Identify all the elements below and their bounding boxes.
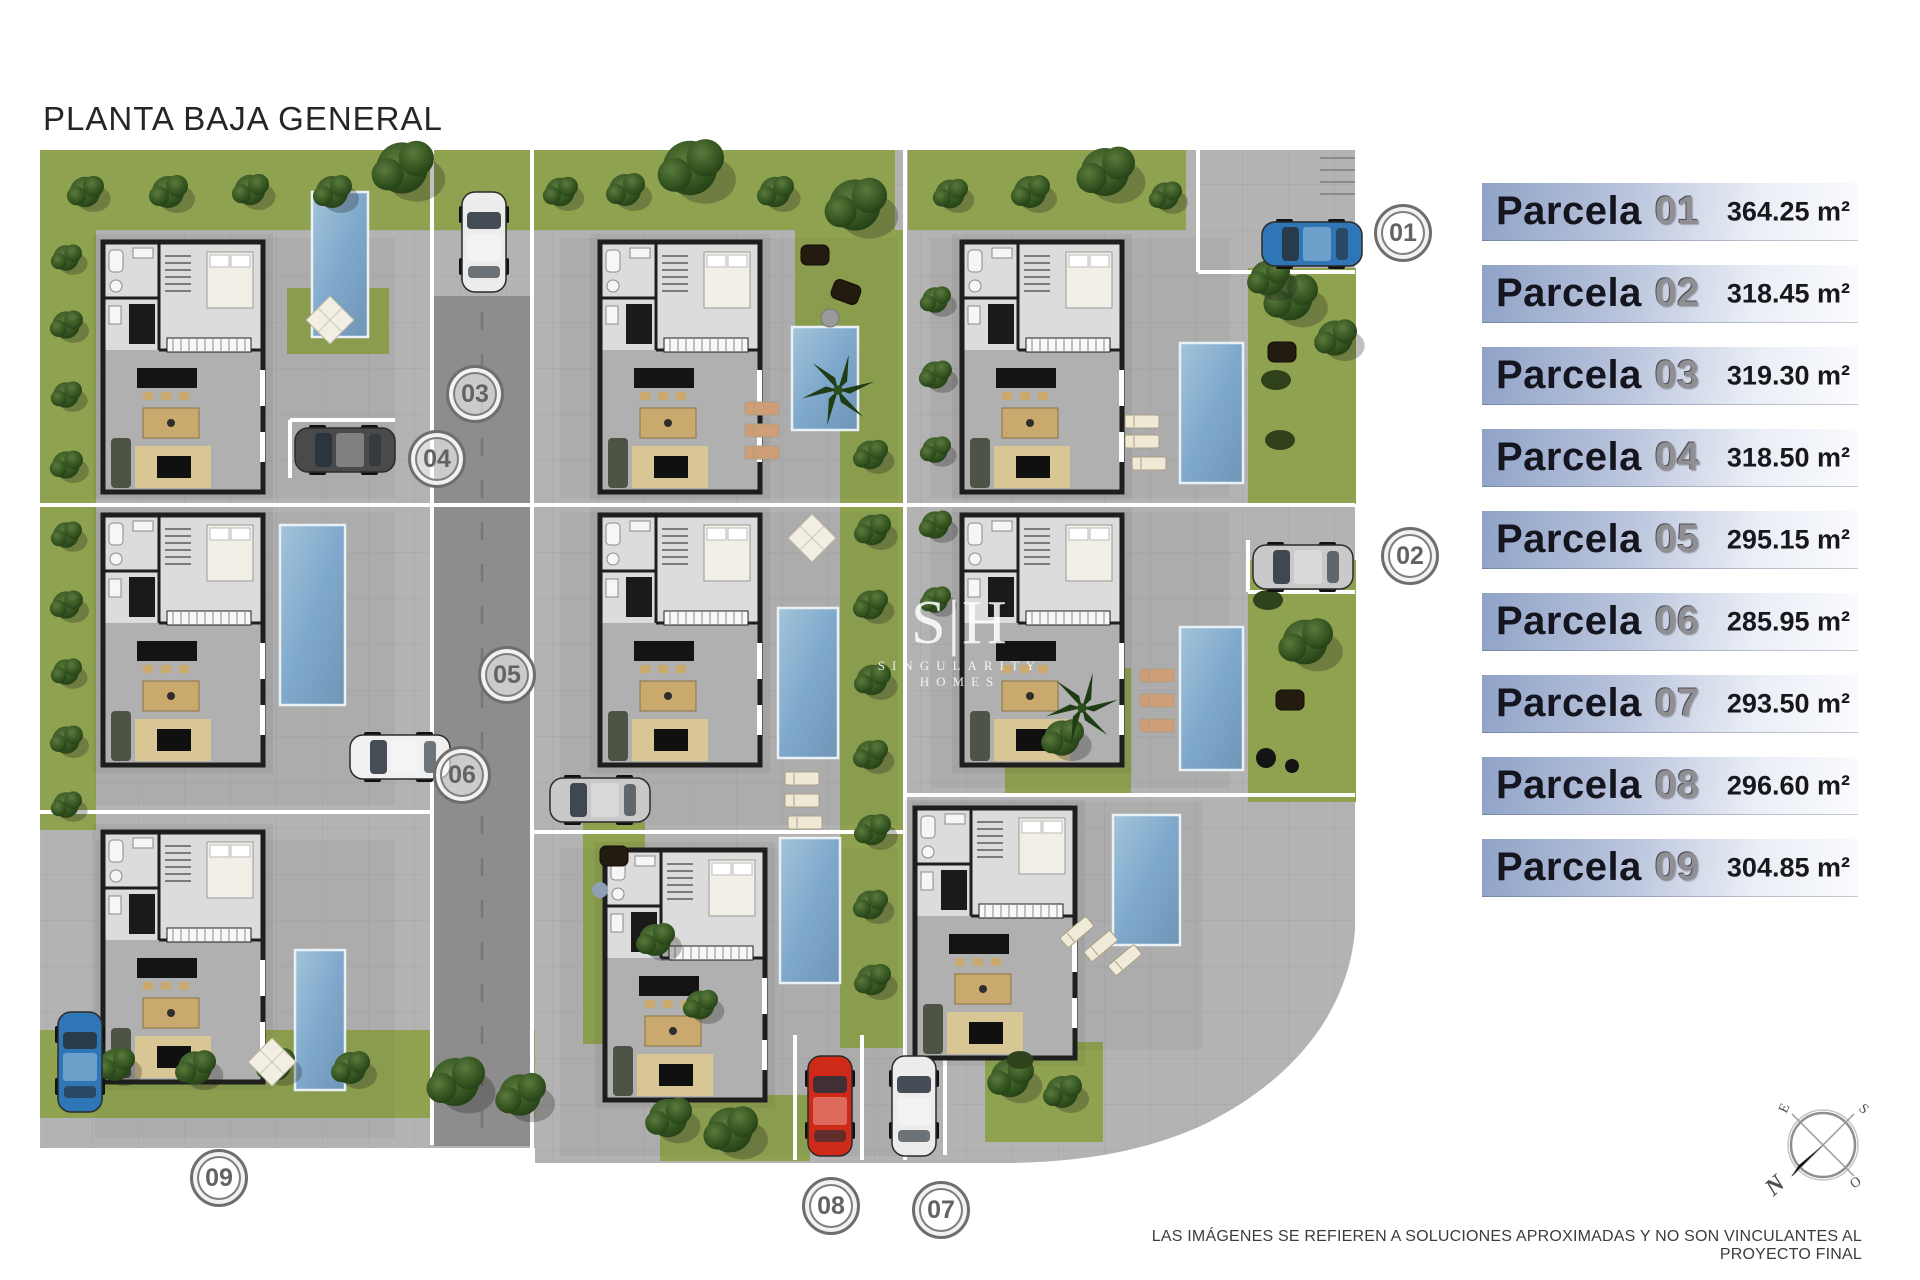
parcela-area: 318.50 m²: [1727, 442, 1850, 473]
villa-floorplan: [905, 800, 1085, 1066]
parcela-area: 285.95 m²: [1727, 606, 1850, 637]
parcela-label: Parcela: [1496, 599, 1642, 644]
parcela-area: 304.85 m²: [1727, 852, 1850, 883]
page-title: PLANTA BAJA GENERAL: [43, 100, 443, 138]
car-icon: [55, 1012, 105, 1112]
parcela-number: 02: [1655, 271, 1700, 316]
compass-o: O: [1848, 1174, 1865, 1192]
compass-s: S: [1855, 1101, 1871, 1117]
plot-marker-04: 04: [408, 430, 466, 488]
plot-marker-08: 08: [802, 1177, 860, 1235]
parcela-number: 09: [1655, 845, 1700, 890]
villa-floorplan: [595, 842, 775, 1108]
parcela-area: 295.15 m²: [1727, 524, 1850, 555]
parcela-number: 06: [1655, 599, 1700, 644]
swimming-pool: [1180, 343, 1243, 483]
swimming-pool: [792, 327, 858, 430]
legend-row-parcela-02: Parcela 02 318.45 m²: [1482, 265, 1858, 323]
plot-marker-01: 01: [1374, 204, 1432, 262]
parcela-legend: Parcela 01 364.25 m² Parcela 02 318.45 m…: [1482, 183, 1858, 921]
plot-marker-03: 03: [446, 365, 504, 423]
swimming-pool: [1180, 627, 1243, 770]
plot-marker-05: 05: [478, 646, 536, 704]
parcela-number: 03: [1655, 353, 1700, 398]
parcela-label: Parcela: [1496, 517, 1642, 562]
villa-floorplan: [93, 507, 273, 773]
plot-marker-02: 02: [1381, 527, 1439, 585]
parcela-number: 01: [1655, 189, 1700, 234]
villas: [93, 234, 1132, 1108]
parcela-label: Parcela: [1496, 353, 1642, 398]
parcela-area: 296.60 m²: [1727, 770, 1850, 801]
parcela-label: Parcela: [1496, 845, 1642, 890]
parcela-label: Parcela: [1496, 763, 1642, 808]
parcela-area: 319.30 m²: [1727, 360, 1850, 391]
car-icon: [459, 192, 509, 292]
car-icon: [550, 775, 650, 825]
parcela-area: 293.50 m²: [1727, 688, 1850, 719]
legend-row-parcela-04: Parcela 04 318.50 m²: [1482, 429, 1858, 487]
parcela-label: Parcela: [1496, 681, 1642, 726]
car-icon: [1253, 542, 1353, 592]
parcela-area: 318.45 m²: [1727, 278, 1850, 309]
parcela-number: 07: [1655, 681, 1700, 726]
legend-row-parcela-01: Parcela 01 364.25 m²: [1482, 183, 1858, 241]
villa-floorplan: [590, 507, 770, 773]
car-icon: [295, 425, 395, 475]
disclaimer-text: LAS IMÁGENES SE REFIEREN A SOLUCIONES AP…: [1102, 1228, 1862, 1264]
parcela-number: 05: [1655, 517, 1700, 562]
swimming-pool: [778, 608, 838, 758]
parcela-number: 04: [1655, 435, 1700, 480]
central-road: [434, 296, 530, 1146]
plot-marker-09: 09: [190, 1149, 248, 1207]
swimming-pool: [280, 525, 345, 705]
swimming-pool: [1113, 815, 1180, 945]
parcela-label: Parcela: [1496, 435, 1642, 480]
car-icon: [805, 1056, 855, 1156]
plot-marker-07: 07: [912, 1181, 970, 1239]
parcela-area: 364.25 m²: [1727, 196, 1850, 227]
villa-floorplan: [93, 234, 273, 500]
compass-rose-icon: N E S O: [1758, 1088, 1888, 1208]
legend-row-parcela-06: Parcela 06 285.95 m²: [1482, 593, 1858, 651]
villa-floorplan: [952, 234, 1132, 500]
legend-row-parcela-08: Parcela 08 296.60 m²: [1482, 757, 1858, 815]
compass-e: E: [1776, 1101, 1793, 1115]
legend-row-parcela-05: Parcela 05 295.15 m²: [1482, 511, 1858, 569]
legend-row-parcela-09: Parcela 09 304.85 m²: [1482, 839, 1858, 897]
car-icon: [889, 1056, 939, 1156]
villa-floorplan: [590, 234, 770, 500]
legend-row-parcela-03: Parcela 03 319.30 m²: [1482, 347, 1858, 405]
swimming-pool: [780, 838, 840, 983]
compass-n: N: [1759, 1169, 1791, 1202]
car-icon: [1262, 219, 1362, 269]
legend-row-parcela-07: Parcela 07 293.50 m²: [1482, 675, 1858, 733]
parcela-label: Parcela: [1496, 189, 1642, 234]
parcela-label: Parcela: [1496, 271, 1642, 316]
plot-marker-06: 06: [433, 746, 491, 804]
parcela-number: 08: [1655, 763, 1700, 808]
